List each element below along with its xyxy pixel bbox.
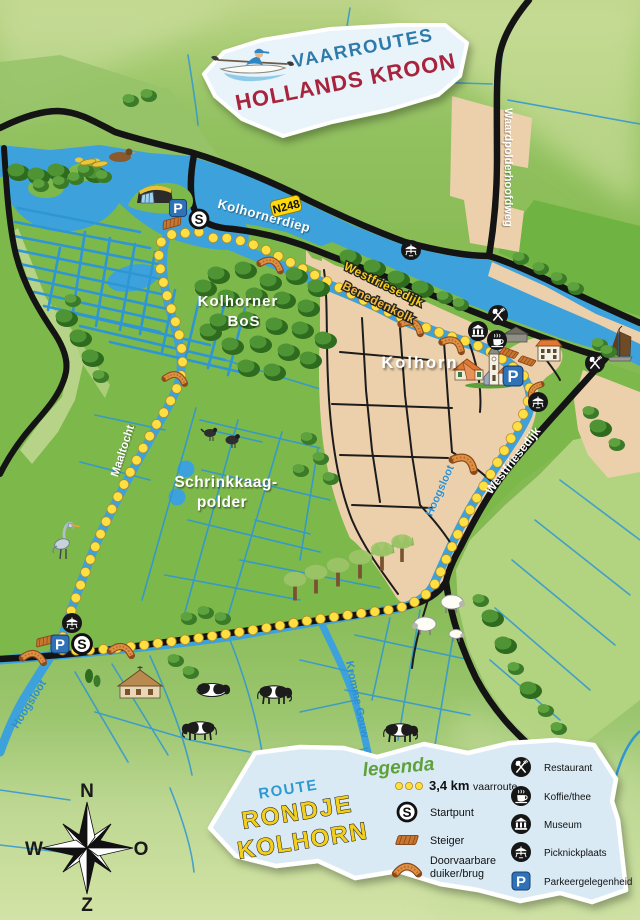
svg-text:Startpunt: Startpunt [430,807,474,819]
svg-text:W: W [25,839,43,860]
svg-text:Picknickplaats: Picknickplaats [544,848,607,859]
svg-text:Steiger: Steiger [430,835,465,847]
svg-text:Waardpolderhoofdweg: Waardpolderhoofdweg [502,108,514,227]
svg-text:Schrinkkaag-: Schrinkkaag- [174,474,277,491]
svg-text:duiker/brug: duiker/brug [430,868,484,880]
svg-text:BoS: BoS [228,313,261,330]
svg-text:O: O [134,839,149,860]
svg-text:Kolhorn: Kolhorn [381,354,458,372]
svg-text:Kolhorner: Kolhorner [198,293,279,310]
svg-text:Parkeergelegenheid: Parkeergelegenheid [544,877,632,888]
svg-text:Restaurant: Restaurant [544,763,593,774]
svg-text:N: N [80,781,94,802]
svg-text:vaarroute: vaarroute [473,781,518,793]
svg-text:Koffie/thee: Koffie/thee [544,792,592,803]
svg-text:Museum: Museum [544,820,582,831]
svg-text:3,4 km: 3,4 km [429,778,469,793]
svg-text:polder: polder [197,494,247,511]
svg-text:Doorvaarbare: Doorvaarbare [430,855,496,867]
svg-text:Z: Z [81,895,93,916]
